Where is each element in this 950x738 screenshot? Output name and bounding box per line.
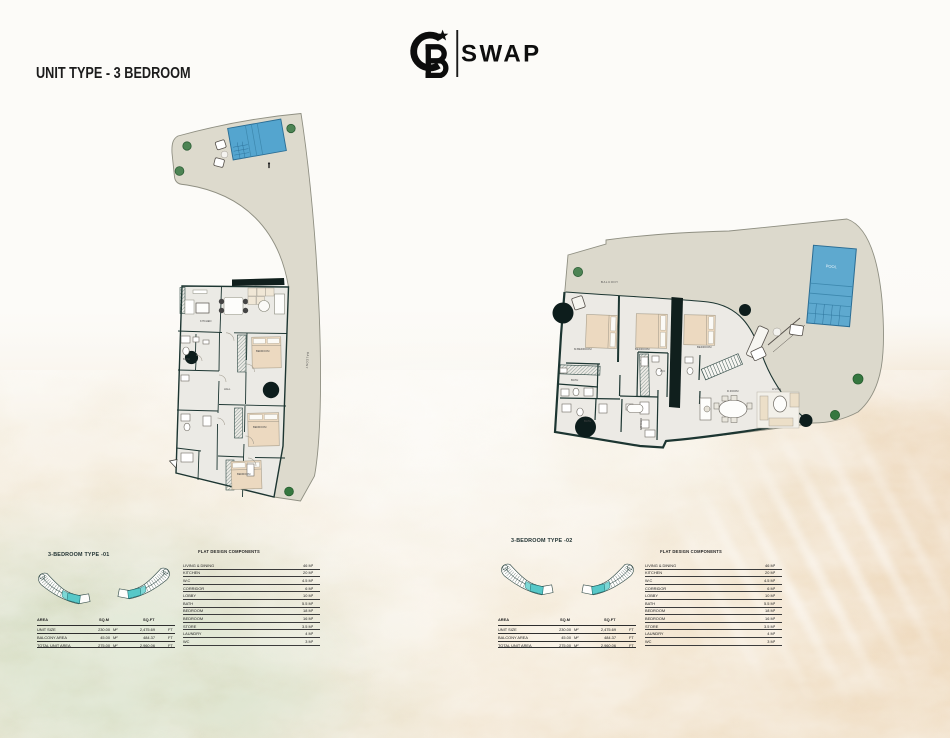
svg-text:BATH: BATH bbox=[571, 378, 578, 382]
svg-text:BEDROOM: BEDROOM bbox=[697, 345, 712, 349]
svg-text:D.ROOM: D.ROOM bbox=[727, 389, 739, 393]
svg-text:BEDROOM: BEDROOM bbox=[237, 472, 250, 476]
svg-text:POOL: POOL bbox=[826, 263, 838, 269]
svg-text:BATH: BATH bbox=[183, 357, 190, 361]
svg-text:BALCONY: BALCONY bbox=[601, 280, 619, 284]
svg-text:BEDROOM: BEDROOM bbox=[253, 425, 266, 429]
svg-text:M.BEDROOM: M.BEDROOM bbox=[574, 347, 592, 351]
svg-text:BEDROOM: BEDROOM bbox=[635, 347, 650, 351]
svg-text:KITCHEN: KITCHEN bbox=[639, 418, 643, 430]
svg-text:BATH: BATH bbox=[584, 419, 591, 423]
svg-text:W.C: W.C bbox=[660, 369, 665, 373]
svg-text:HALL: HALL bbox=[224, 387, 231, 391]
svg-text:BEDROOM: BEDROOM bbox=[256, 349, 269, 353]
svg-text:KITCHEN: KITCHEN bbox=[200, 319, 212, 323]
svg-text:SWAP: SWAP bbox=[461, 41, 542, 68]
svg-text:LIVING: LIVING bbox=[772, 387, 781, 391]
